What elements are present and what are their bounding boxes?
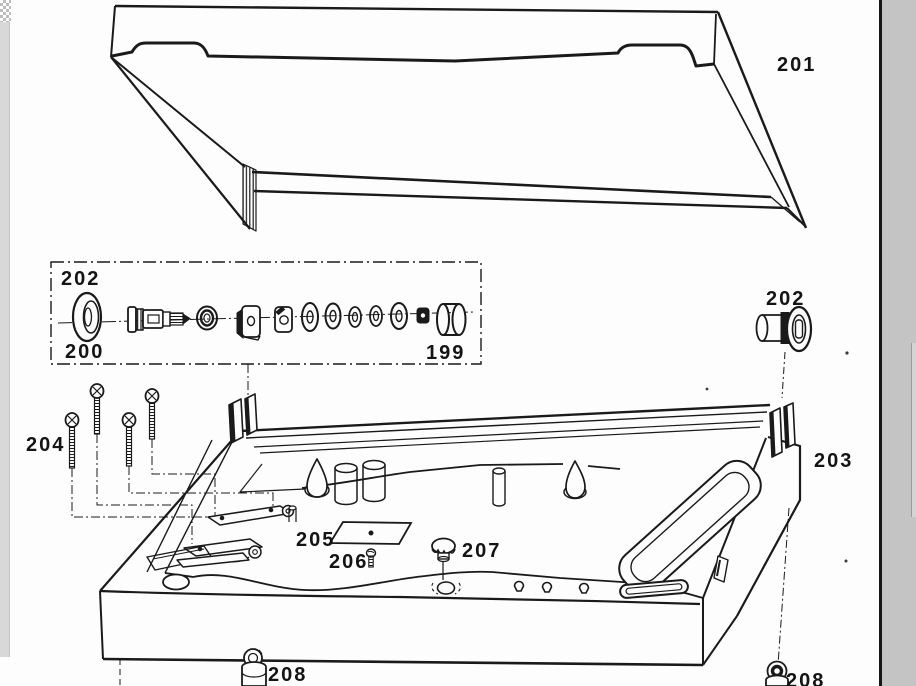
compartment-cutout [612, 453, 768, 600]
foot-right [766, 508, 789, 686]
part-label-cover: 201 [777, 54, 816, 76]
screw-2 [91, 384, 104, 434]
part-label-hinge-box: 202 [61, 268, 100, 290]
part-label-sleeve: 199 [426, 342, 465, 364]
part-label-knob: 207 [462, 540, 501, 562]
cable-post [493, 468, 505, 506]
part-label-foot-left: 208 [268, 664, 307, 686]
part-label-screws: 204 [26, 434, 65, 456]
part-label-grommet: 200 [65, 341, 104, 363]
part-label-chassis: 203 [814, 450, 853, 472]
part-label-plate: 205 [296, 529, 335, 551]
part-label-foot-right: 208 [786, 670, 825, 686]
keyhole-knobs [515, 582, 589, 594]
bracket-plates [147, 506, 296, 571]
pawl-right [564, 461, 586, 499]
hinge-exploded-assembly [51, 262, 481, 364]
side-tab [714, 556, 728, 582]
scrollbar-thumb[interactable] [911, 343, 916, 517]
cover-drawing [111, 6, 806, 231]
corner-post-right [770, 403, 795, 457]
screw-1 [66, 413, 79, 468]
hinge-assembled-right [757, 307, 812, 398]
chassis-drawing [100, 394, 800, 665]
diagram-canvas: 201 202 200 199 202 203 204 205 206 207 … [0, 0, 916, 686]
pawl-left [305, 459, 329, 497]
screw-4 [146, 389, 159, 439]
scanned-page: 201 202 200 199 202 203 204 205 206 207 … [0, 0, 916, 686]
corner-post-left [229, 394, 257, 443]
part-label-plate-screw: 206 [329, 551, 368, 573]
knob-207 [432, 539, 461, 595]
screw-3 [123, 413, 136, 466]
part-label-hinge-right: 202 [766, 288, 805, 310]
front-hole [163, 575, 189, 590]
foot-left [120, 649, 266, 686]
